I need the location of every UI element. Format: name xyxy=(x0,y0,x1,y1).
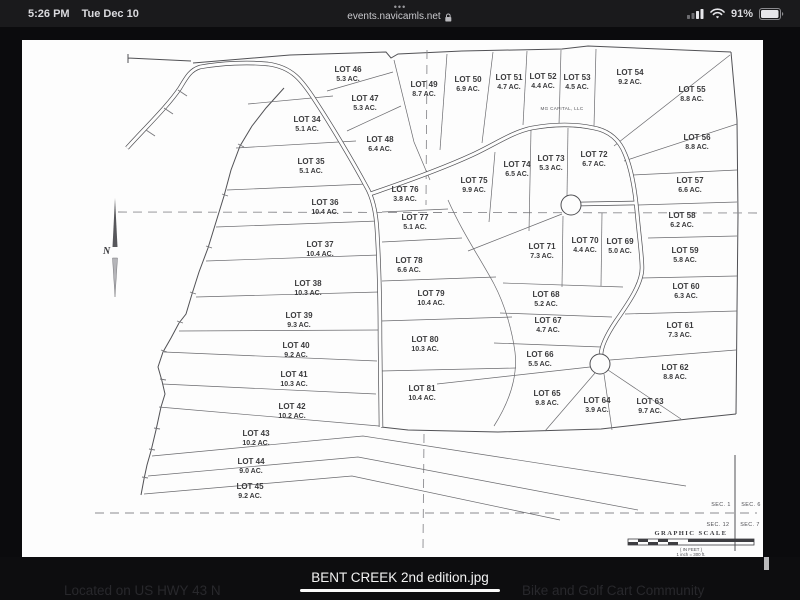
clock-date: Tue Dec 10 xyxy=(82,8,139,20)
sec-label: SEC. 1 xyxy=(711,502,730,508)
owner-label: MG CAPITAL, LLC xyxy=(541,106,584,111)
cul-de-sac-north xyxy=(561,195,581,215)
status-right: 91% xyxy=(687,8,784,20)
map-page xyxy=(22,40,763,558)
clock-time: 5:26 PM xyxy=(28,8,70,20)
north-label: N xyxy=(102,246,111,257)
filename-label: BENT CREEK 2nd edition.jpg xyxy=(311,570,489,585)
status-bar: 5:26 PM Tue Dec 10 ••• events.navicamls.… xyxy=(0,0,800,27)
caption-right: Bike and Golf Cart Community xyxy=(522,583,704,598)
scrollbar-thumb[interactable] xyxy=(764,557,769,570)
wifi-icon xyxy=(710,8,725,19)
graphic-scale-label: GRAPHIC SCALE xyxy=(655,530,728,537)
tablet-screen: 5:26 PM Tue Dec 10 ••• events.navicamls.… xyxy=(0,0,800,600)
sec-label: SEC. 12 xyxy=(707,522,730,528)
sec-label: SEC. 7 xyxy=(740,522,759,528)
url-text[interactable]: events.navicamls.net xyxy=(347,12,440,22)
cul-de-sac-south xyxy=(590,354,610,374)
status-left: 5:26 PM Tue Dec 10 xyxy=(28,8,139,20)
address-bar[interactable]: ••• events.navicamls.net xyxy=(347,2,452,22)
caption-bar: Located on US HWY 43 N BENT CREEK 2nd ed… xyxy=(0,557,800,600)
lock-icon xyxy=(445,13,453,22)
sec-label: SEC. 6 xyxy=(741,502,760,508)
filename-underline xyxy=(300,589,500,592)
cellular-signal-icon xyxy=(687,8,704,19)
plat-map-image[interactable]: N MG CAPITAL, LLC SEC. 1 SEC. 6 SEC. 12 … xyxy=(0,27,800,600)
battery-icon xyxy=(759,8,784,20)
caption-left: Located on US HWY 43 N xyxy=(64,583,221,598)
battery-percent: 91% xyxy=(731,8,753,20)
